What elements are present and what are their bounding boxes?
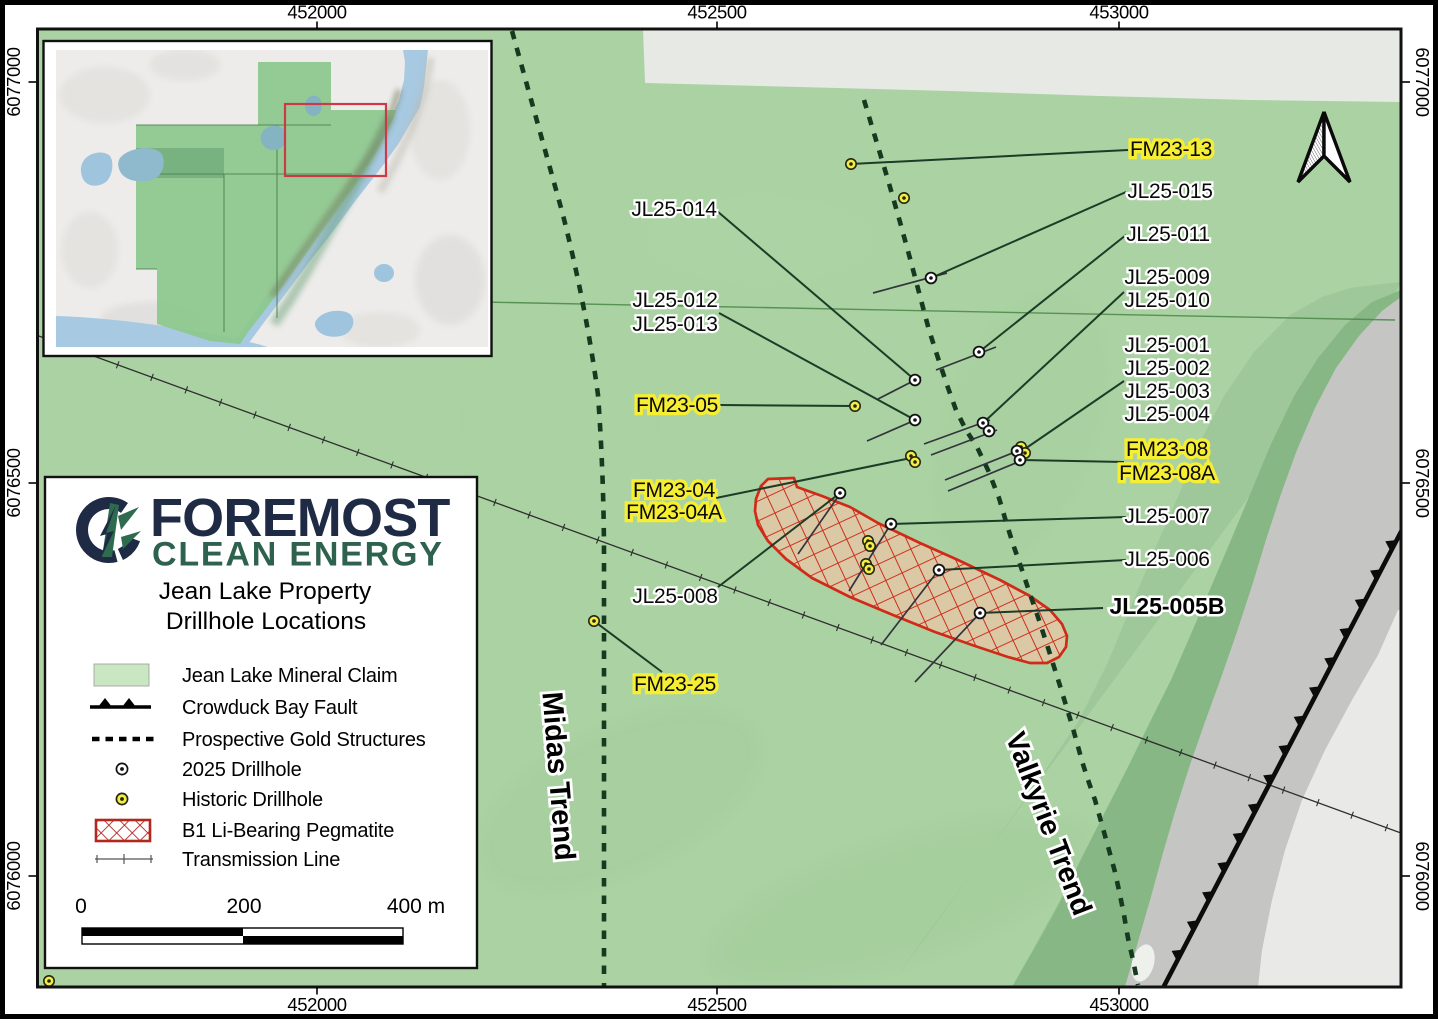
svg-text:Jean Lake Mineral Claim: Jean Lake Mineral Claim [182, 665, 398, 687]
svg-text:Crowduck Bay Fault: Crowduck Bay Fault [182, 697, 358, 719]
svg-text:JL25-013: JL25-013 [632, 313, 717, 336]
svg-text:6076000: 6076000 [3, 841, 24, 910]
svg-text:453000: 453000 [1089, 2, 1148, 23]
svg-text:452000: 452000 [287, 2, 346, 23]
svg-text:Historic Drillhole: Historic Drillhole [182, 789, 323, 811]
svg-text:2025 Drillhole: 2025 Drillhole [182, 759, 302, 781]
svg-text:JL25-009: JL25-009 [1124, 266, 1209, 289]
svg-text:JL25-001: JL25-001 [1124, 334, 1209, 357]
svg-text:FM23-05: FM23-05 [636, 394, 718, 417]
svg-text:453000: 453000 [1089, 994, 1148, 1015]
svg-text:6077000: 6077000 [1412, 47, 1433, 116]
svg-text:JL25-007: JL25-007 [1124, 505, 1209, 528]
svg-text:452500: 452500 [687, 2, 746, 23]
svg-text:200: 200 [226, 895, 261, 918]
svg-text:400 m: 400 m [387, 895, 445, 918]
svg-text:452000: 452000 [287, 994, 346, 1015]
svg-text:JL25-002: JL25-002 [1124, 357, 1209, 380]
svg-text:452500: 452500 [687, 994, 746, 1015]
svg-text:FM23-08A: FM23-08A [1119, 462, 1215, 485]
svg-text:Transmission Line: Transmission Line [182, 849, 340, 871]
svg-text:FM23-08: FM23-08 [1126, 438, 1208, 461]
svg-text:JL25-008: JL25-008 [632, 585, 717, 608]
svg-text:JL25-004: JL25-004 [1124, 403, 1210, 426]
svg-text:Jean Lake Property: Jean Lake Property [159, 578, 372, 605]
svg-text:FM23-04A: FM23-04A [626, 501, 722, 524]
svg-text:JL25-003: JL25-003 [1124, 380, 1209, 403]
svg-text:JL25-011: JL25-011 [1126, 223, 1210, 246]
svg-text:JL25-012: JL25-012 [632, 289, 717, 312]
svg-text:FM23-25: FM23-25 [634, 673, 716, 696]
svg-text:CLEAN ENERGY: CLEAN ENERGY [152, 536, 444, 574]
svg-text:Drillhole Locations: Drillhole Locations [166, 608, 366, 635]
svg-text:JL25-014: JL25-014 [631, 198, 717, 221]
svg-text:6076000: 6076000 [1412, 841, 1433, 910]
svg-text:JL25-006: JL25-006 [1124, 548, 1209, 571]
svg-text:0: 0 [75, 895, 87, 918]
svg-text:JL25-005B: JL25-005B [1109, 593, 1224, 619]
svg-text:6076500: 6076500 [3, 448, 24, 517]
svg-text:6077000: 6077000 [3, 47, 24, 116]
svg-text:FM23-13: FM23-13 [1130, 138, 1212, 161]
svg-text:Prospective Gold Structures: Prospective Gold Structures [182, 729, 426, 751]
svg-text:FM23-04: FM23-04 [633, 479, 716, 502]
svg-text:6076500: 6076500 [1412, 448, 1433, 517]
svg-text:JL25-010: JL25-010 [1124, 289, 1209, 312]
svg-text:JL25-015: JL25-015 [1127, 180, 1212, 203]
svg-text:B1 Li-Bearing Pegmatite: B1 Li-Bearing Pegmatite [182, 820, 394, 842]
